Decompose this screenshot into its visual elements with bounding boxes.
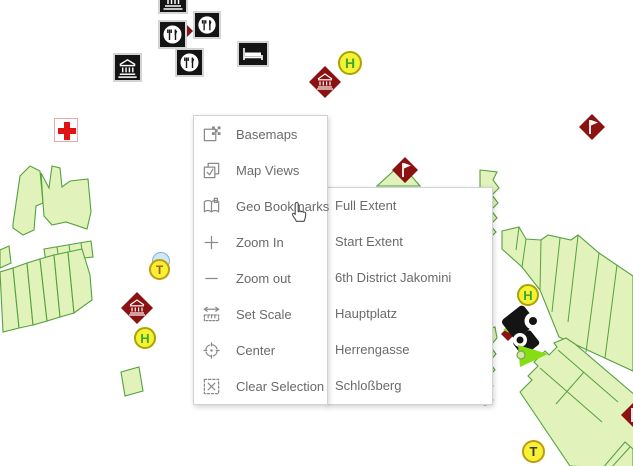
zoom-in-icon: [202, 233, 221, 252]
menu-item-set-scale[interactable]: Set Scale: [194, 296, 327, 332]
flag-diamond-poi-icon: [577, 112, 607, 142]
stop-letter: T: [156, 263, 163, 277]
flag-diamond-poi-icon: [619, 400, 633, 430]
center-icon: [202, 341, 221, 360]
museum-poi[interactable]: [113, 53, 142, 82]
map-views-icon: [202, 161, 221, 180]
museum-diamond-poi[interactable]: [307, 64, 343, 105]
museum-diamond-poi[interactable]: [119, 290, 155, 331]
menu-item-basemaps[interactable]: Basemaps: [194, 116, 327, 152]
geo-bookmarks-icon: [202, 197, 221, 216]
submenu-item-hauptplatz[interactable]: Hauptplatz: [327, 296, 492, 332]
restaurant-poi-icon: [177, 50, 202, 75]
museum-poi-icon: [160, 0, 186, 12]
vehicle-marker-icon: [495, 298, 555, 370]
restaurant-poi[interactable]: [158, 20, 187, 49]
hotel-bed-poi-icon: [239, 43, 267, 65]
vehicle-marker[interactable]: [495, 298, 555, 375]
waypoint-dot: [517, 351, 525, 359]
menu-item-center[interactable]: Center: [194, 332, 327, 368]
menu-item-label: Zoom out: [236, 271, 291, 286]
menu-item-clear-selection[interactable]: Clear Selection: [194, 368, 327, 404]
sight-flag-poi[interactable]: [390, 155, 420, 190]
set-scale-icon: [202, 305, 221, 324]
museum-diamond-poi-icon: [119, 290, 155, 326]
map-context-menu: Basemaps Map Views Geo Bookmarks Zoom In: [193, 115, 328, 405]
menu-item-label: Geo Bookmarks: [236, 199, 329, 214]
basemaps-icon: [202, 125, 221, 144]
museum-diamond-poi-icon: [307, 64, 343, 100]
map-application: H H H: [0, 0, 633, 466]
menu-item-zoom-out[interactable]: Zoom out: [194, 260, 327, 296]
submenu-item-6th-district-jakomini[interactable]: 6th District Jakomini: [327, 260, 492, 296]
museum-poi[interactable]: [158, 0, 188, 14]
menu-item-label: Clear Selection: [236, 379, 324, 394]
museum-poi-icon: [115, 55, 140, 80]
submenu-item-herrengasse[interactable]: Herrengasse: [327, 332, 492, 368]
stop-letter: H: [345, 55, 355, 71]
stop-letter: H: [140, 331, 149, 346]
clear-selection-icon: [202, 377, 221, 396]
restaurant-poi-icon: [195, 13, 219, 37]
sight-flag-poi[interactable]: [619, 400, 633, 435]
restaurant-poi[interactable]: [193, 11, 221, 39]
menu-item-label: Center: [236, 343, 275, 358]
menu-item-label: Set Scale: [236, 307, 292, 322]
menu-item-label: Zoom In: [236, 235, 284, 250]
menu-item-label: Map Views: [236, 163, 299, 178]
menu-item-map-views[interactable]: Map Views: [194, 152, 327, 188]
restaurant-poi[interactable]: [175, 48, 204, 77]
hotel-poi[interactable]: [237, 41, 269, 67]
tram-stop-t-marker[interactable]: T: [149, 259, 170, 280]
sight-flag-poi[interactable]: [577, 112, 607, 147]
geo-bookmarks-submenu: Full Extent Start Extent 6th District Ja…: [326, 187, 493, 405]
flag-diamond-poi-icon: [390, 155, 420, 185]
submenu-item-full-extent[interactable]: Full Extent: [327, 188, 492, 224]
submenu-item-schlossberg[interactable]: Schloßberg: [327, 368, 492, 404]
submenu-item-start-extent[interactable]: Start Extent: [327, 224, 492, 260]
hand-cursor-icon: [288, 201, 309, 230]
restaurant-poi-icon: [160, 22, 185, 47]
zoom-out-icon: [202, 269, 221, 288]
tram-stop-t-marker[interactable]: T: [522, 440, 545, 463]
menu-item-label: Basemaps: [236, 127, 297, 142]
stop-letter: T: [530, 444, 538, 459]
hospital-poi[interactable]: [54, 118, 78, 142]
